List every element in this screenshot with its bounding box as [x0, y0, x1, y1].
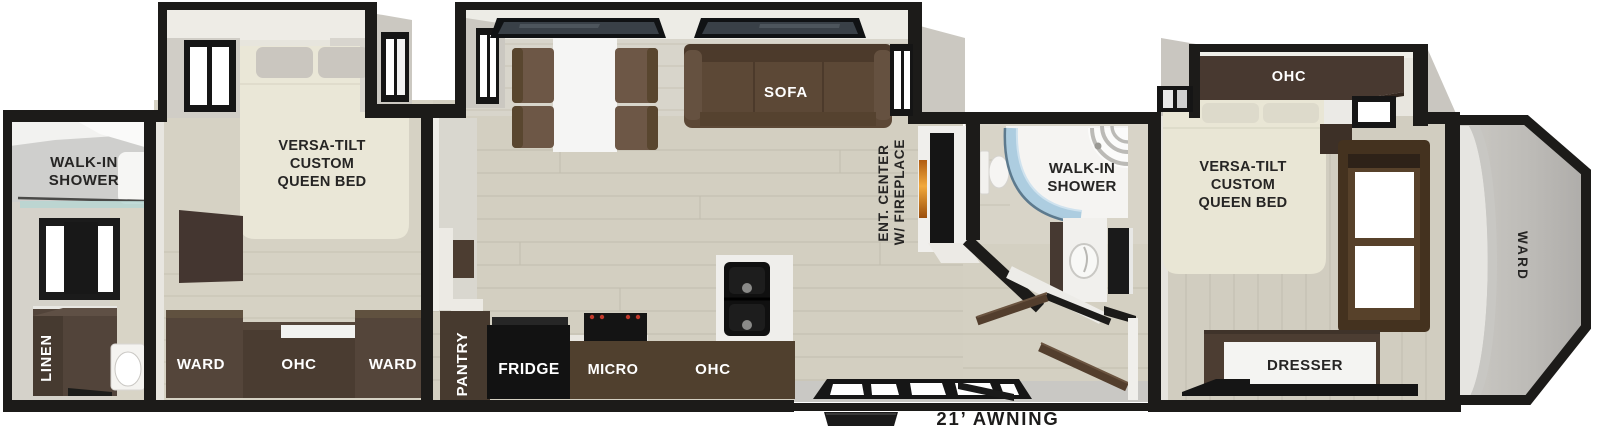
svg-text:VERSA-TILT: VERSA-TILT	[1199, 159, 1286, 175]
svg-text:OHC: OHC	[695, 361, 731, 378]
svg-text:21’ AWNING: 21’ AWNING	[936, 408, 1059, 428]
svg-text:LINEN: LINEN	[39, 334, 55, 382]
svg-text:QUEEN BED: QUEEN BED	[1199, 195, 1288, 211]
svg-text:DRESSER: DRESSER	[1267, 357, 1343, 374]
svg-text:WARD: WARD	[177, 356, 225, 373]
svg-text:W/ FIREPLACE: W/ FIREPLACE	[892, 139, 907, 245]
svg-text:FRIDGE: FRIDGE	[498, 361, 560, 378]
svg-text:WARD: WARD	[369, 356, 417, 373]
svg-text:SOFA: SOFA	[764, 84, 808, 101]
svg-text:SHOWER: SHOWER	[49, 172, 120, 189]
svg-text:SHOWER: SHOWER	[1047, 178, 1116, 195]
svg-text:QUEEN BED: QUEEN BED	[278, 174, 367, 190]
svg-text:CUSTOM: CUSTOM	[290, 156, 354, 172]
svg-text:VERSA-TILT: VERSA-TILT	[278, 138, 365, 154]
svg-text:OHC: OHC	[281, 356, 316, 373]
svg-text:WALK-IN: WALK-IN	[50, 154, 118, 171]
svg-text:MICRO: MICRO	[588, 362, 639, 378]
svg-text:CUSTOM: CUSTOM	[1211, 177, 1275, 193]
svg-text:ENT. CENTER: ENT. CENTER	[876, 144, 891, 241]
svg-text:PANTRY: PANTRY	[454, 332, 471, 397]
svg-text:WARD: WARD	[1515, 231, 1530, 281]
svg-text:WALK-IN: WALK-IN	[1049, 160, 1115, 177]
svg-text:OHC: OHC	[1272, 69, 1307, 85]
